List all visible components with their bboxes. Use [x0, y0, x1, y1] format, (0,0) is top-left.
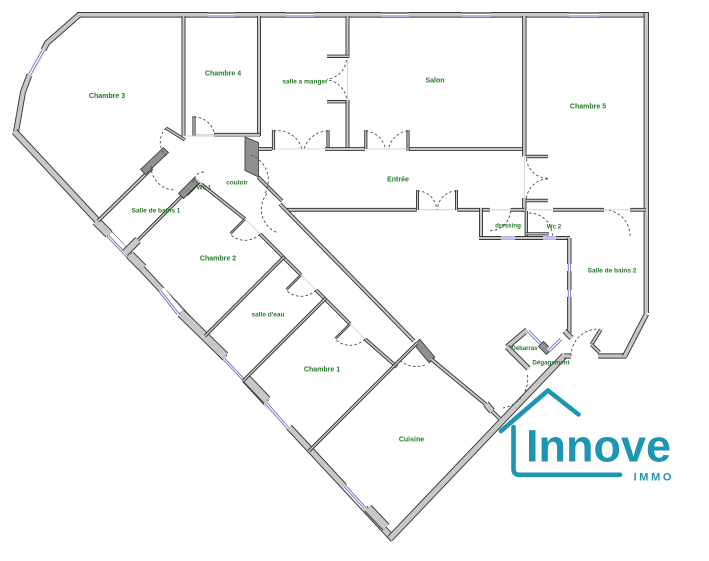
svg-text:salle d'eau: salle d'eau: [252, 312, 285, 319]
svg-text:Chambre 3: Chambre 3: [89, 93, 125, 100]
svg-text:Salle de bains 2: Salle de bains 2: [588, 268, 637, 275]
svg-text:couloir: couloir: [226, 180, 248, 187]
svg-text:Cuisine: Cuisine: [399, 437, 424, 444]
svg-text:Débarras: Débarras: [511, 346, 538, 352]
svg-text:Innove: Innove: [526, 421, 671, 472]
svg-text:Chambre 5: Chambre 5: [570, 104, 606, 111]
svg-text:Salon: Salon: [425, 78, 444, 85]
svg-text:salle a manger: salle a manger: [282, 79, 328, 86]
svg-text:Entrée: Entrée: [387, 177, 409, 184]
svg-text:Chambre 4: Chambre 4: [205, 71, 241, 78]
svg-text:IMMO: IMMO: [634, 472, 674, 484]
svg-text:Chambre 1: Chambre 1: [304, 367, 340, 374]
svg-text:Salle de bains 1: Salle de bains 1: [132, 208, 181, 215]
svg-text:Dégagement: Dégagement: [532, 360, 569, 367]
svg-text:dressing: dressing: [495, 223, 521, 230]
svg-text:Wc 2: Wc 2: [547, 224, 562, 231]
svg-text:Wc 1: Wc 1: [197, 185, 212, 192]
svg-text:Chambre 2: Chambre 2: [200, 256, 236, 263]
